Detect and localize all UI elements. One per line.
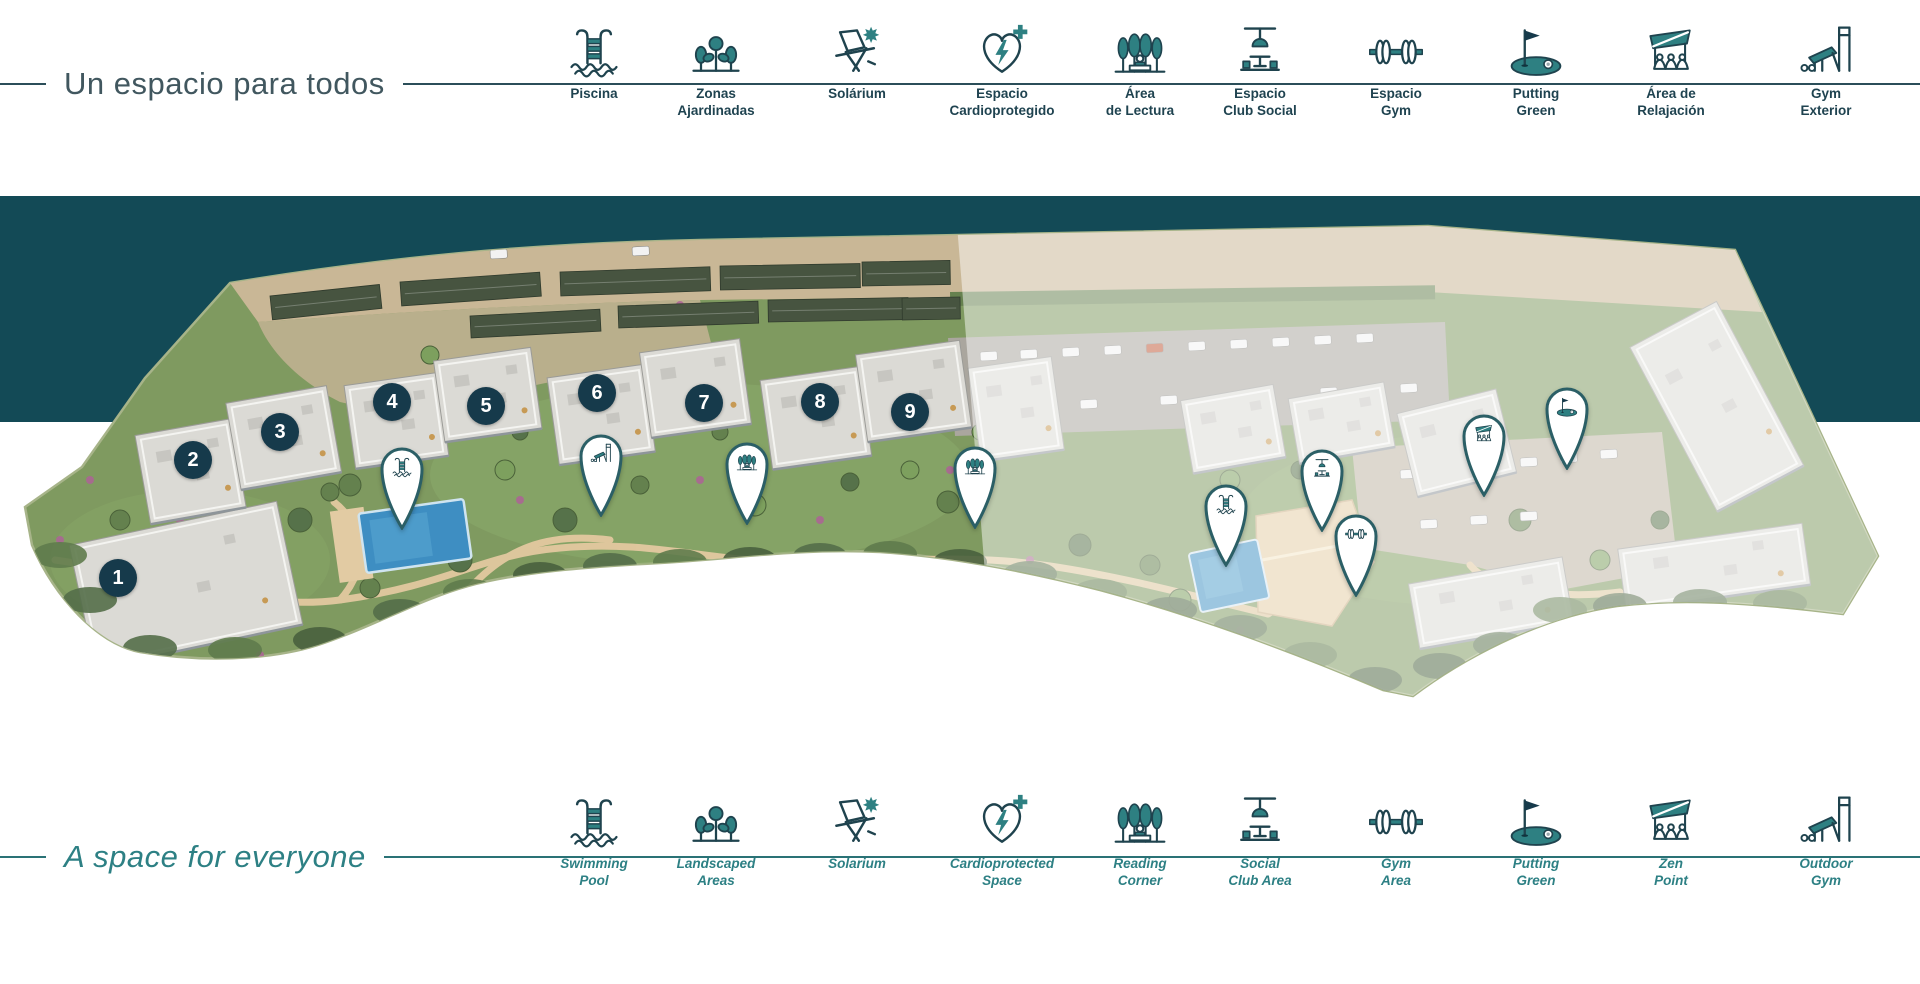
building-number: 5 <box>480 395 491 418</box>
amenity-label: Putting Green <box>1513 86 1560 120</box>
building-marker-6: 6 <box>578 374 616 412</box>
gym-icon <box>1365 22 1427 82</box>
amenity-putting-green: Putting Green <box>1461 22 1611 120</box>
amenity-outdoor-gym: Outdoor Gym <box>1751 792 1901 890</box>
amenity-label: Zen Point <box>1654 856 1688 890</box>
building-number: 9 <box>904 401 915 424</box>
solarium-icon <box>826 792 888 852</box>
building-marker-3: 3 <box>261 413 299 451</box>
access-road <box>230 226 1762 322</box>
solarium-icon <box>826 22 888 82</box>
map-pin-reading-corner <box>952 443 998 529</box>
building-marker-7: 7 <box>685 384 723 422</box>
amenity-label: Reading Corner <box>1113 856 1166 890</box>
map-pin-swimming-pool <box>1203 481 1249 567</box>
brochure-page: Un espacio para todos PiscinaZonas Ajard… <box>0 0 1920 984</box>
building-number: 7 <box>698 392 709 415</box>
social-club-icon <box>1229 22 1291 82</box>
cardioprotected-icon <box>971 792 1033 852</box>
building-marker-9: 9 <box>891 393 929 431</box>
amenity-label: Espacio Gym <box>1370 86 1422 120</box>
map-pin-reading-corner <box>724 439 770 525</box>
map-pin-putting-green <box>1544 384 1590 470</box>
swimming-pool-icon <box>563 792 625 852</box>
amenity-zen-point: Zen Point <box>1596 792 1746 890</box>
landscaped-areas-icon <box>685 22 747 82</box>
amenity-landscaped-areas: Landscaped Areas <box>641 792 791 890</box>
amenity-label: Social Club Area <box>1228 856 1291 890</box>
amenity-label: Espacio Cardioprotegido <box>950 86 1055 120</box>
zen-point-icon <box>1640 792 1702 852</box>
amenity-putting-green: Putting Green <box>1461 792 1611 890</box>
putting-green-icon <box>1505 22 1567 82</box>
reading-corner-icon <box>1109 792 1171 852</box>
amenity-label: Landscaped Areas <box>677 856 756 890</box>
cardioprotected-icon <box>971 22 1033 82</box>
teal-band <box>0 196 1920 422</box>
swimming-pool-icon <box>563 22 625 82</box>
amenity-label: Gym Exterior <box>1800 86 1851 120</box>
phase-fade-overlay <box>955 200 1920 760</box>
amenity-outdoor-gym: Gym Exterior <box>1751 22 1901 120</box>
gym-icon <box>1365 792 1427 852</box>
building-marker-5: 5 <box>467 387 505 425</box>
amenity-label: Zonas Ajardinadas <box>677 86 754 120</box>
map-pin-zen-point <box>1461 411 1507 497</box>
zen-point-icon <box>1640 22 1702 82</box>
landscaped-areas-icon <box>685 792 747 852</box>
building-marker-4: 4 <box>373 383 411 421</box>
building-number: 6 <box>591 382 602 405</box>
outdoor-gym-icon <box>1795 792 1857 852</box>
building-number: 2 <box>187 449 198 472</box>
amenity-label: Cardioprotected Space <box>950 856 1054 890</box>
building-number: 4 <box>386 391 397 414</box>
amenity-gym: Espacio Gym <box>1321 22 1471 120</box>
amenity-label: Espacio Club Social <box>1223 86 1297 120</box>
amenity-solarium: Solarium <box>782 792 932 873</box>
amenity-social-club: Social Club Area <box>1185 792 1335 890</box>
outdoor-gym-icon <box>1795 22 1857 82</box>
amenity-label: Outdoor Gym <box>1799 856 1852 890</box>
amenity-gym: Gym Area <box>1321 792 1471 890</box>
amenity-label: Gym Area <box>1381 856 1411 890</box>
amenity-social-club: Espacio Club Social <box>1185 22 1335 120</box>
building-number: 3 <box>274 421 285 444</box>
header-title: Un espacio para todos <box>46 65 403 103</box>
amenity-zen-point: Área de Relajación <box>1596 22 1746 120</box>
amenity-landscaped-areas: Zonas Ajardinadas <box>641 22 791 120</box>
amenity-label: Área de Relajación <box>1637 86 1705 120</box>
map-pin-swimming-pool <box>379 444 425 530</box>
amenity-label: Swimming Pool <box>560 856 628 890</box>
amenity-cardioprotected: Espacio Cardioprotegido <box>927 22 1077 120</box>
amenity-solarium: Solárium <box>782 22 932 103</box>
putting-green-icon <box>1505 792 1567 852</box>
reading-corner-icon <box>1109 22 1171 82</box>
amenity-label: Solárium <box>828 86 886 103</box>
building-number: 8 <box>814 391 825 414</box>
amenity-cardioprotected: Cardioprotected Space <box>927 792 1077 890</box>
social-club-icon <box>1229 792 1291 852</box>
building-number: 1 <box>112 567 123 590</box>
map-pin-gym <box>1333 511 1379 597</box>
amenity-label: Solarium <box>828 856 886 873</box>
amenity-label: Área de Lectura <box>1106 86 1174 120</box>
map-pin-outdoor-gym <box>578 431 624 517</box>
building-marker-2: 2 <box>174 441 212 479</box>
building-marker-8: 8 <box>801 383 839 421</box>
amenity-label: Piscina <box>570 86 617 103</box>
footer-title: A space for everyone <box>46 838 384 876</box>
amenity-label: Putting Green <box>1513 856 1560 890</box>
building-marker-1: 1 <box>99 559 137 597</box>
